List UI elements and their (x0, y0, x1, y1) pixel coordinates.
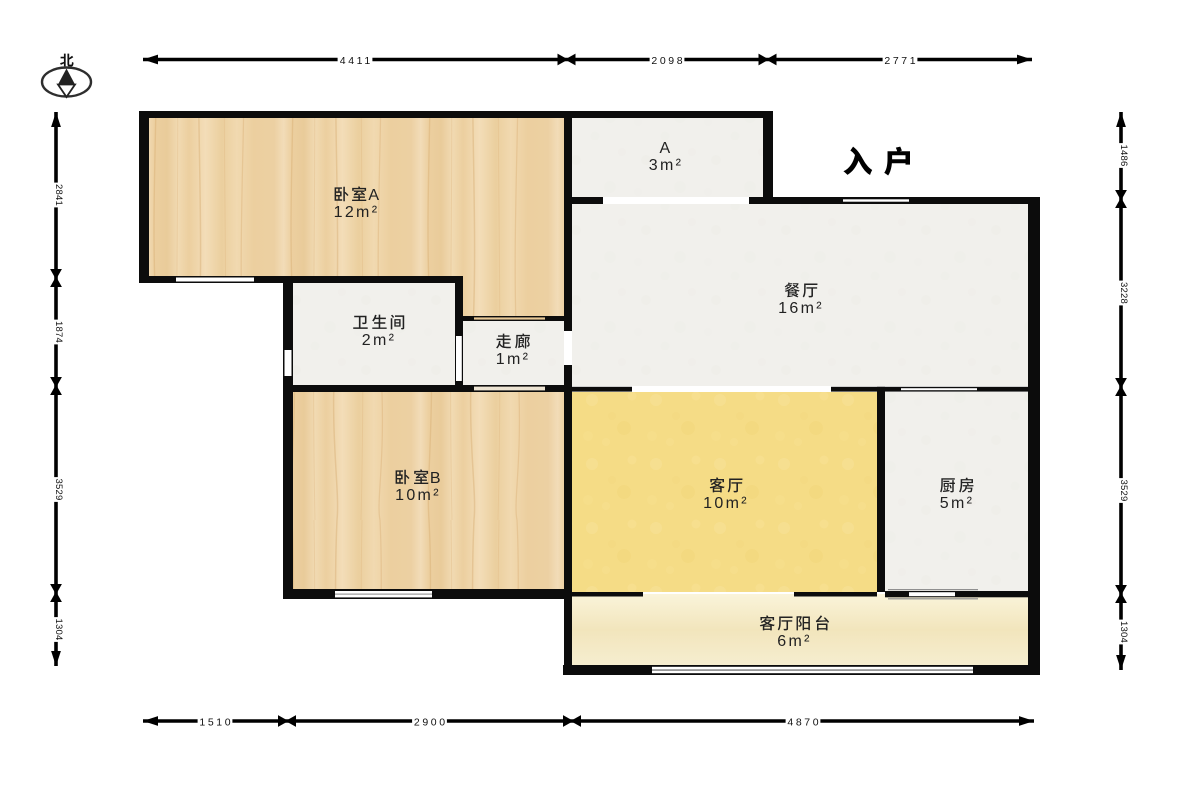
svg-text:2098: 2098 (651, 55, 685, 67)
svg-text:3228: 3228 (1118, 282, 1129, 304)
svg-text:1510: 1510 (199, 716, 233, 728)
svg-text:4411: 4411 (340, 55, 373, 67)
svg-text:1304: 1304 (53, 619, 64, 641)
svg-text:1874: 1874 (53, 321, 64, 343)
svg-text:3529: 3529 (1118, 480, 1129, 502)
svg-text:4870: 4870 (787, 716, 821, 728)
svg-text:1486: 1486 (1118, 145, 1129, 167)
svg-text:1304: 1304 (1118, 621, 1129, 643)
svg-text:2771: 2771 (884, 55, 918, 67)
svg-text:3529: 3529 (53, 479, 64, 501)
svg-text:2900: 2900 (414, 716, 448, 728)
svg-text:2841: 2841 (53, 184, 64, 206)
